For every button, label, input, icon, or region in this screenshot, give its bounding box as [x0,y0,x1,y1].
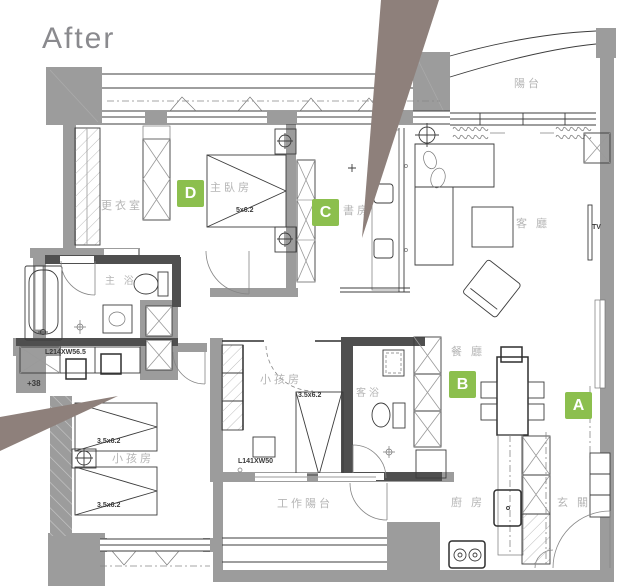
wardrobe [143,139,170,220]
room-label-entry: 玄 關 [557,494,591,510]
top-windows [102,74,450,124]
toilet-icon [134,274,158,294]
floor-plan: After 陽台 客 廳 書房 主臥房 更衣室 主 浴 小孩房 小孩房 客浴 餐… [0,0,642,588]
stool [66,359,86,379]
desk-dimension: L141XW50 [238,458,273,465]
tv-label: TV [592,224,601,231]
bed [296,392,343,475]
chair [374,184,393,203]
dressing-room-furniture [75,128,100,245]
badge-c: C [312,199,339,226]
toilet-icon [372,403,390,427]
plant-icon [421,149,438,170]
chair [501,347,522,362]
room-label-master-bath: 主 浴 [105,272,137,287]
chair [374,239,393,258]
chair [481,382,497,398]
compass-icon [415,123,439,147]
stool [101,354,121,374]
counter [498,435,523,555]
room-label-kids2: 小孩房 [260,371,302,387]
floor-level-label: +38 [27,379,41,388]
room-label-kids1: 小孩房 [112,450,154,466]
coffee-table [472,207,513,247]
room-label-dressing: 更衣室 [101,197,143,213]
kids-room-2-furniture [222,341,343,475]
washbasin [103,305,132,333]
lounge-chair [462,259,521,318]
badge-a: A [565,392,592,419]
room-label-guest-bath: 客浴 [356,384,382,399]
curtain-icon [453,127,591,138]
vanity-dimension: L214XW56.5 [45,349,86,356]
guest-bath-fixtures [353,350,405,478]
tv-panel [588,205,592,260]
kid-bed-dimension-1: 3.5x6.2 [97,438,120,445]
badge-b: B [449,371,476,398]
master-bedroom-furniture [143,126,296,294]
chair [528,382,544,398]
chair [528,404,544,420]
room-label-balcony: 陽台 [514,75,542,91]
room-label-kitchen: 廚 房 [451,494,485,510]
room-label-dining: 餐 廳 [451,343,485,359]
kid-bed-dimension-2: 3.5x6.2 [97,502,120,509]
page-title: After [42,22,115,56]
dining-table [497,357,528,435]
badge-d: D [177,180,204,207]
room-label-master-bedroom: 主臥房 [210,179,252,195]
desk [372,130,399,290]
chair [481,404,497,420]
work-balcony-lines [222,473,387,562]
desk [253,437,275,457]
master-bed-dimension: 5x6.2 [236,207,254,214]
room-label-study: 書房 [343,202,371,218]
room-label-living: 客 廳 [516,215,550,231]
kid-bed-dimension-3: 3.5x6.2 [298,392,321,399]
room-label-work-balcony: 工作陽台 [277,495,333,511]
